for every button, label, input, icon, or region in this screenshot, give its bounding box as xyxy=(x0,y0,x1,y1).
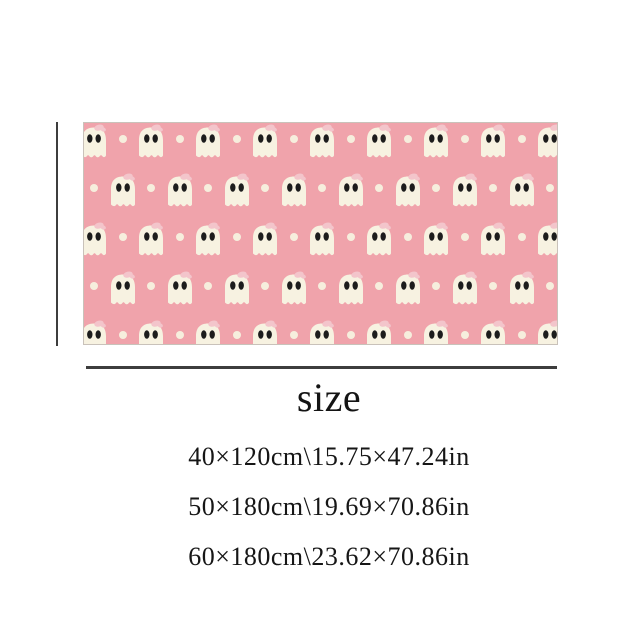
ghost-icon xyxy=(479,221,507,257)
polka-dot xyxy=(347,135,355,143)
ghost-icon xyxy=(83,221,108,257)
ghost-icon xyxy=(451,172,479,208)
ghost-icon xyxy=(508,270,536,306)
ghost-icon xyxy=(83,319,108,345)
ghost-icon xyxy=(194,123,222,159)
polka-dot xyxy=(147,282,155,290)
ghost-icon xyxy=(394,270,422,306)
polka-dot xyxy=(518,135,526,143)
polka-dot xyxy=(204,184,212,192)
polka-dot xyxy=(176,233,184,241)
polka-dot xyxy=(546,282,554,290)
ghost-icon xyxy=(280,270,308,306)
ghost-icon xyxy=(394,172,422,208)
ghost-icon xyxy=(194,319,222,345)
ghost-icon xyxy=(308,221,336,257)
polka-dot xyxy=(119,233,127,241)
polka-dot xyxy=(347,233,355,241)
rug-product-image xyxy=(83,122,558,345)
ghost-icon xyxy=(365,319,393,345)
polka-dot xyxy=(489,184,497,192)
polka-dot xyxy=(318,184,326,192)
polka-dot xyxy=(318,282,326,290)
polka-dot xyxy=(375,282,383,290)
polka-dot xyxy=(290,331,298,339)
size-option: 50×180cm\19.69×70.86in xyxy=(19,492,639,522)
polka-dot xyxy=(404,135,412,143)
polka-dot xyxy=(518,331,526,339)
polka-dot xyxy=(347,331,355,339)
ghost-icon xyxy=(251,123,279,159)
ghost-icon xyxy=(194,221,222,257)
polka-dot xyxy=(290,135,298,143)
ghost-icon xyxy=(251,221,279,257)
divider-line xyxy=(86,366,557,369)
height-dimension-line xyxy=(56,122,58,346)
polka-dot xyxy=(461,233,469,241)
ghost-icon xyxy=(166,172,194,208)
polka-dot xyxy=(147,184,155,192)
ghost-icon xyxy=(308,123,336,159)
polka-dot xyxy=(261,282,269,290)
ghost-icon xyxy=(166,270,194,306)
polka-dot xyxy=(461,135,469,143)
polka-dot xyxy=(233,135,241,143)
product-size-page: size 40×120cm\15.75×47.24in 50×180cm\19.… xyxy=(0,0,640,640)
ghost-icon xyxy=(109,270,137,306)
size-option: 60×180cm\23.62×70.86in xyxy=(19,542,639,572)
polka-dot xyxy=(404,233,412,241)
polka-dot xyxy=(432,184,440,192)
ghost-icon xyxy=(508,172,536,208)
polka-dot xyxy=(461,331,469,339)
ghost-icon xyxy=(83,123,108,159)
polka-dot xyxy=(546,184,554,192)
polka-dot xyxy=(176,331,184,339)
size-option: 40×120cm\15.75×47.24in xyxy=(19,442,639,472)
ghost-icon xyxy=(308,319,336,345)
ghost-icon xyxy=(280,172,308,208)
polka-dot xyxy=(290,233,298,241)
ghost-icon xyxy=(479,123,507,159)
ghost-icon xyxy=(422,123,450,159)
ghost-icon xyxy=(365,221,393,257)
polka-dot xyxy=(176,135,184,143)
ghost-icon xyxy=(137,221,165,257)
ghost-icon xyxy=(479,319,507,345)
ghost-icon xyxy=(137,319,165,345)
polka-dot xyxy=(233,233,241,241)
polka-dot xyxy=(90,282,98,290)
polka-dot xyxy=(119,331,127,339)
ghost-icon xyxy=(536,319,558,345)
polka-dot xyxy=(404,331,412,339)
polka-dot xyxy=(489,282,497,290)
ghost-icon xyxy=(422,221,450,257)
ghost-icon xyxy=(422,319,450,345)
polka-dot xyxy=(204,282,212,290)
ghost-icon xyxy=(451,270,479,306)
ghost-icon xyxy=(223,270,251,306)
ghost-icon xyxy=(536,123,558,159)
ghost-icon xyxy=(109,172,137,208)
size-heading: size xyxy=(19,378,639,418)
polka-dot xyxy=(90,184,98,192)
ghost-icon xyxy=(536,221,558,257)
ghost-icon xyxy=(251,319,279,345)
ghost-icon xyxy=(223,172,251,208)
polka-dot xyxy=(518,233,526,241)
ghost-icon xyxy=(337,172,365,208)
ghost-icon xyxy=(137,123,165,159)
ghost-icon xyxy=(365,123,393,159)
ghost-icon xyxy=(337,270,365,306)
polka-dot xyxy=(261,184,269,192)
polka-dot xyxy=(375,184,383,192)
polka-dot xyxy=(119,135,127,143)
polka-dot xyxy=(233,331,241,339)
polka-dot xyxy=(432,282,440,290)
